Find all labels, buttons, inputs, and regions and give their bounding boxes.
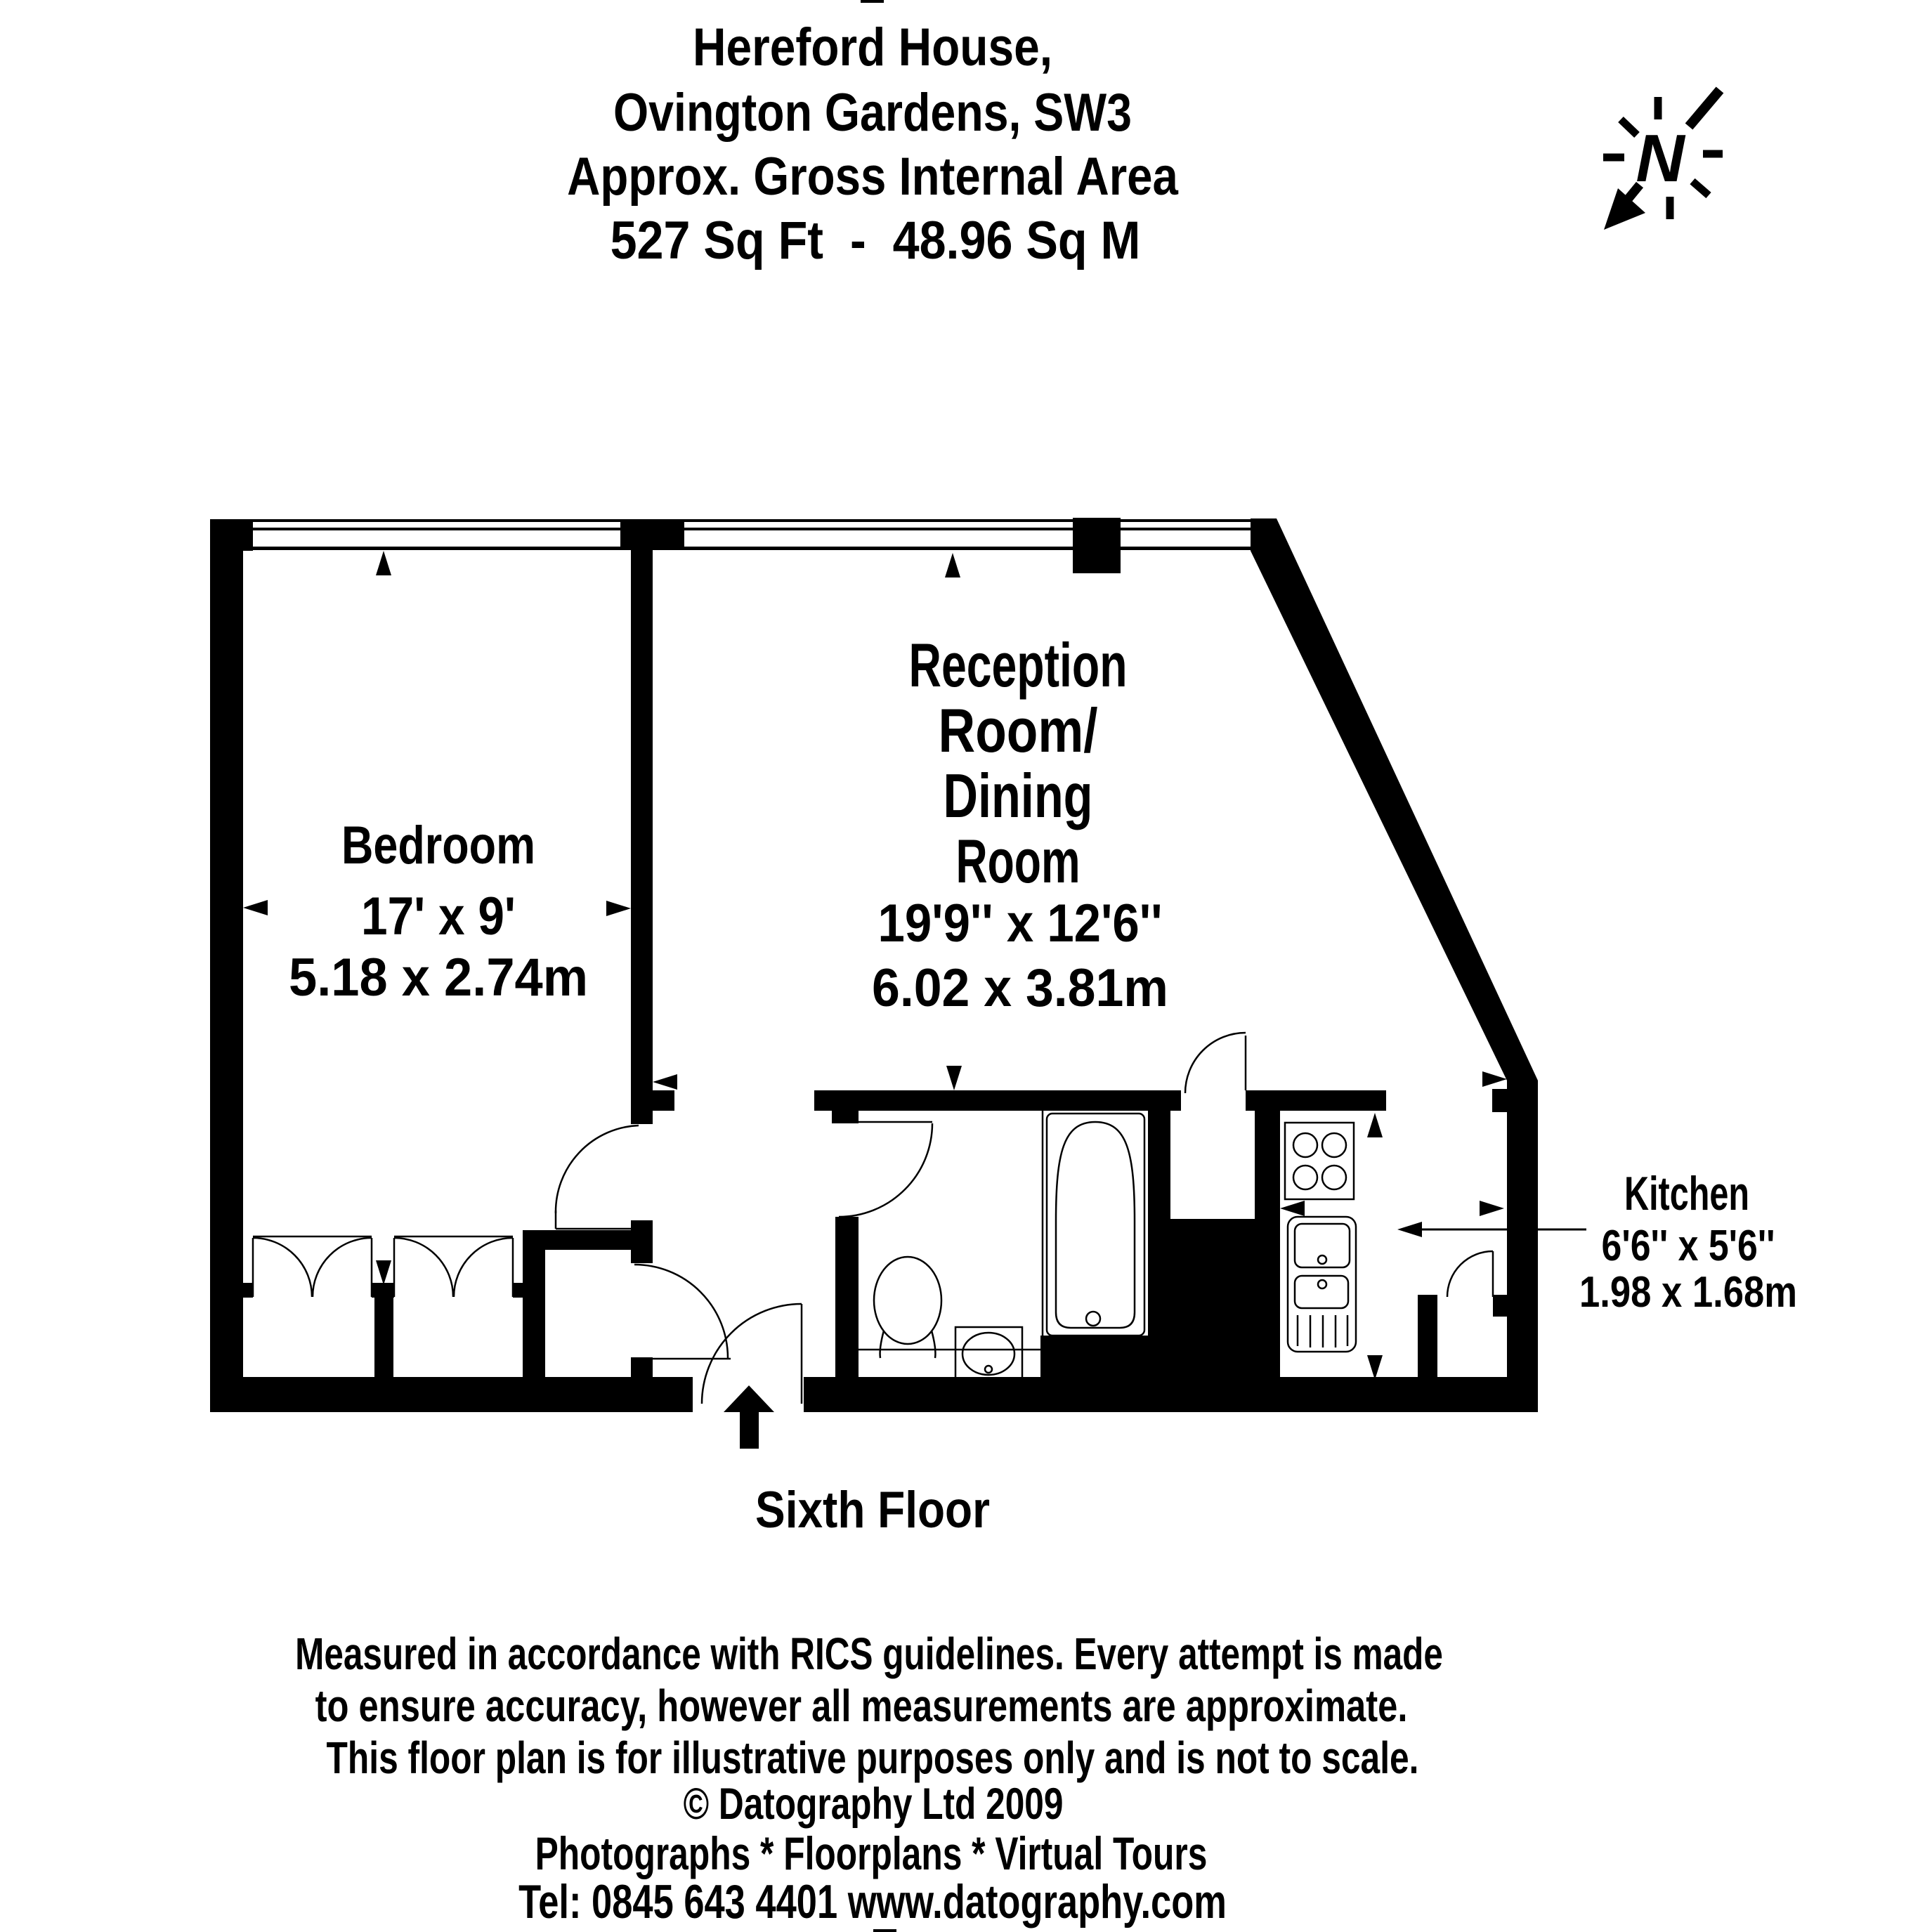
svg-text:17' x 9': 17' x 9' [361, 887, 516, 946]
svg-text:Measured in accordance with RI: Measured in accordance with RICS guideli… [295, 1629, 1443, 1680]
svg-text:Reception: Reception [908, 631, 1127, 700]
svg-text:1.98 x 1.68m: 1.98 x 1.68m [1579, 1268, 1797, 1317]
svg-text:Hereford House,: Hereford House, [693, 18, 1052, 77]
svg-text:This floor plan is for illustr: This floor plan is for illustrative purp… [327, 1733, 1419, 1783]
svg-text:527 Sq Ft - 48.96 Sq M: 527 Sq Ft - 48.96 Sq M [611, 211, 1141, 270]
svg-text:6'6'' x 5'6'': 6'6'' x 5'6'' [1602, 1222, 1775, 1270]
svg-text:Bedroom: Bedroom [341, 815, 535, 875]
svg-text:N: N [1636, 121, 1685, 196]
svg-text:5.18 x 2.74m: 5.18 x 2.74m [289, 947, 588, 1007]
svg-text:6.02 x 3.81m: 6.02 x 3.81m [872, 958, 1168, 1017]
svg-text:19'9'' x 12'6'': 19'9'' x 12'6'' [878, 894, 1163, 953]
svg-text:Kitchen: Kitchen [1624, 1167, 1749, 1220]
svg-text:Room: Room [956, 828, 1081, 896]
svg-text:to ensure accuracy, however al: to ensure accuracy, however all measurem… [315, 1681, 1408, 1731]
svg-text:Room/: Room/ [939, 697, 1098, 766]
svg-text:Dining: Dining [944, 762, 1093, 830]
svg-text:Photographs * Floorplans * Vir: Photographs * Floorplans * Virtual Tours [535, 1828, 1208, 1879]
svg-text:Approx. Gross Internal Area: Approx. Gross Internal Area [567, 147, 1178, 207]
svg-text:© Datography Ltd 2009: © Datography Ltd 2009 [684, 1780, 1064, 1829]
svg-text:Sixth Floor: Sixth Floor [755, 1481, 990, 1539]
svg-text:Tel: 0845 643 4401 www.datogra: Tel: 0845 643 4401 www.datography.com [518, 1874, 1227, 1928]
svg-text:Ovington Gardens, SW3: Ovington Gardens, SW3 [613, 82, 1132, 142]
